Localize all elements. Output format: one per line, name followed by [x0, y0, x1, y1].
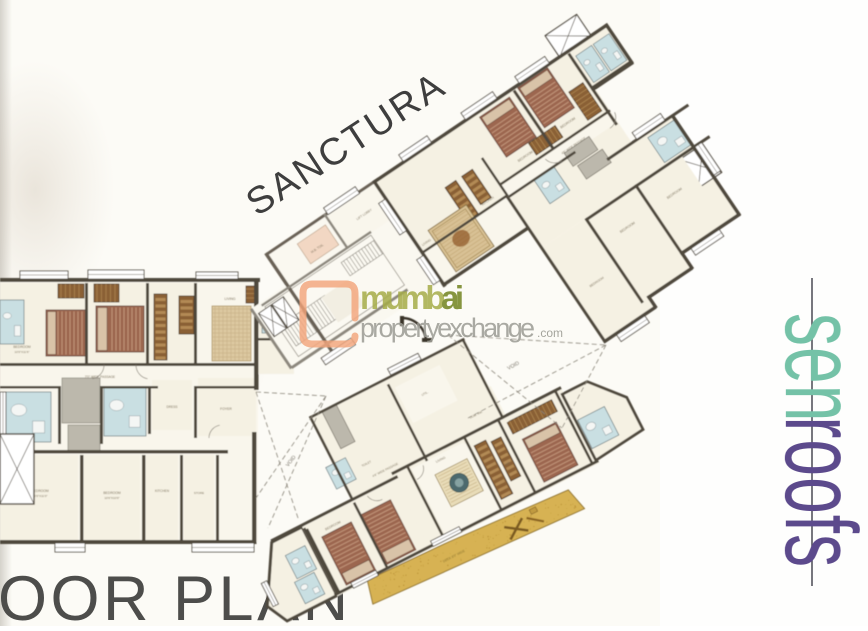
svg-text:10'0"X11'6": 10'0"X11'6" — [14, 350, 29, 354]
svg-text:.com: .com — [537, 326, 563, 340]
svg-text:KITCHEN: KITCHEN — [155, 489, 170, 493]
svg-text:propertyexchange: propertyexchange — [360, 313, 535, 343]
svg-text:BEDROOM: BEDROOM — [103, 491, 121, 495]
svg-text:10'0"X11'0": 10'0"X11'0" — [32, 494, 47, 498]
svg-text:STORE: STORE — [194, 491, 204, 495]
svg-text:LIVING: LIVING — [224, 297, 235, 301]
svg-text:senroofs: senroofs — [763, 313, 868, 568]
svg-text:DRESS: DRESS — [167, 405, 178, 409]
svg-text:mumbai: mumbai — [360, 279, 464, 316]
svg-text:BEDROOM: BEDROOM — [13, 345, 31, 349]
svg-text:FOYER: FOYER — [220, 407, 232, 411]
svg-text:10'6"X10'0": 10'6"X10'0" — [104, 496, 119, 500]
